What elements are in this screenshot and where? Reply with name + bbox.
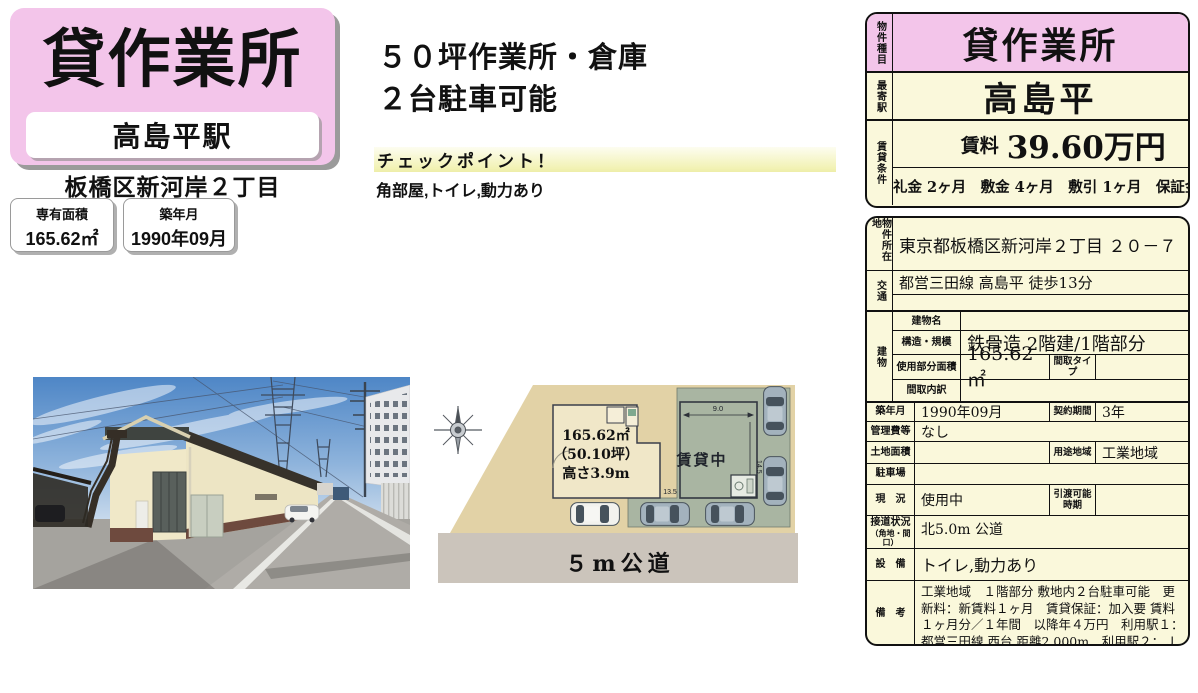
photo-parked-car <box>285 505 319 523</box>
row-management: 管理費等 なし <box>867 421 1188 441</box>
built-value: 1990年09月 <box>915 403 1049 421</box>
row-status: 現 況 使用中 引渡可能時期 <box>867 484 1188 515</box>
photo-apartment-building <box>366 385 410 489</box>
layout-detail-value <box>961 380 1188 401</box>
building-name-value <box>961 312 1188 330</box>
plan-tsubo: （50.10坪） <box>553 447 639 463</box>
row-built: 築年月 1990年09月 契約期間 3年 <box>867 401 1188 421</box>
summary-row-station: 最寄駅 高島平 <box>867 71 1188 119</box>
rent-label: 賃料 <box>961 131 999 158</box>
checkpoint-bar: チェックポイント！ <box>374 147 836 172</box>
listing-flyer: 貸作業所 高島平駅 板橋区新河岸２丁目 専有面積 165.62㎡ 築年月 199… <box>0 0 1198 693</box>
status-value: 使用中 <box>915 485 1049 515</box>
row-parking: 駐車場 <box>867 463 1188 484</box>
car-white <box>571 503 620 526</box>
summary-table: 物件種目 貸作業所 最寄駅 高島平 賃貸条件 賃料 39.60万円 礼金 2ヶ月… <box>865 12 1190 208</box>
address-short: 板橋区新河岸２丁目 <box>10 168 335 202</box>
access-empty <box>893 295 1188 310</box>
row-location: 物件所在地 東京都板橋区新河岸２丁目 ２０－７ <box>867 218 1188 270</box>
summary-row-property-type: 物件種目 貸作業所 <box>867 14 1188 71</box>
exterior-photo-scene <box>33 377 410 589</box>
road-contact-value: 北5.0m 公道 <box>915 516 1188 548</box>
row-used-area: 使用部分面積 165.62㎡ 間取タイプ <box>893 354 1188 379</box>
checkpoint-title: チェックポイント！ <box>377 147 557 172</box>
land-value <box>915 442 1049 463</box>
road: ５m公道 <box>438 533 798 583</box>
property-type-title: 貸作業所 <box>10 10 335 110</box>
headline-line2: ２台駐車可能 <box>378 76 558 118</box>
car-right-1 <box>764 387 787 436</box>
row-layout-detail: 間取内訳 <box>893 379 1188 401</box>
summary-property-type: 貸作業所 <box>893 14 1188 71</box>
row-equipment: 設 備 トイレ,動力あり <box>867 548 1188 580</box>
station-box: 高島平駅 <box>26 112 319 158</box>
dim-top: 9.0 <box>713 404 723 413</box>
station-name: 高島平駅 <box>112 115 232 155</box>
summary-station: 高島平 <box>893 73 1188 119</box>
row-land: 土地面積 用途地域 工業地域 <box>867 441 1188 463</box>
built-card-label: 築年月 <box>124 204 234 223</box>
car-bottom-1 <box>641 503 690 526</box>
station-label-cell: 最寄駅 <box>867 73 893 119</box>
property-type-label-cell: 物件種目 <box>867 14 893 71</box>
row-access: 交通 都営三田線 高島平 徒歩13分 <box>867 270 1188 310</box>
zoning-value: 工業地域 <box>1096 442 1188 463</box>
car-right-2 <box>764 457 787 506</box>
rent-value: 39.60万円 <box>1007 122 1166 167</box>
site-plan-drawing: ５m公道 賃貸中 9.0 14.5 13.5 <box>430 368 850 590</box>
location-value: 東京都板橋区新河岸２丁目 ２０－７ <box>893 218 1188 270</box>
management-value: なし <box>915 422 1188 441</box>
row-notes: 備 考 工業地域 １階部分 敷地内２台駐車可能 更新料：新賃料１ヶ月 賃貸保証：… <box>867 580 1188 646</box>
terms-line: 礼金 2ヶ月 敷金 4ヶ月 敷引 1ヶ月 保証金 なし <box>893 168 1190 205</box>
property-type-card: 貸作業所 高島平駅 <box>10 8 335 165</box>
road-label: ５m公道 <box>565 551 674 577</box>
detail-table: 物件所在地 東京都板橋区新河岸２丁目 ２０－７ 交通 都営三田線 高島平 徒歩1… <box>865 216 1190 646</box>
area-card-label: 専有面積 <box>11 204 113 223</box>
handover-value <box>1096 485 1188 515</box>
row-road-contact: 接道状況 （角地・間口） 北5.0m 公道 <box>867 515 1188 548</box>
car-bottom-2 <box>706 503 755 526</box>
rented-label: 賃貸中 <box>675 451 727 469</box>
exterior-photo <box>33 377 410 589</box>
row-building-name: 建物名 <box>893 312 1188 330</box>
parking-value <box>915 464 1188 484</box>
plan-area: 165.62㎡ <box>562 427 630 444</box>
row-building-group: 建物 建物名 構造・規模 鉄骨造 2階建/1階部分 使用部分面積 165.62㎡… <box>867 310 1188 401</box>
checkpoint-text: 角部屋,トイレ,動力あり <box>376 177 545 201</box>
terms-label-cell: 賃貸条件 <box>867 121 893 205</box>
area-card-value: 165.62㎡ <box>11 225 113 251</box>
site-plan: ５m公道 賃貸中 9.0 14.5 13.5 <box>430 368 850 590</box>
access-value: 都営三田線 高島平 徒歩13分 <box>893 271 1188 295</box>
used-area-value: 165.62㎡ <box>961 355 1049 379</box>
summary-row-terms: 賃貸条件 賃料 39.60万円 礼金 2ヶ月 敷金 4ヶ月 敷引 1ヶ月 保証金… <box>867 119 1188 205</box>
area-card: 専有面積 165.62㎡ <box>10 198 114 252</box>
photo-storage-cabinet <box>191 495 223 537</box>
built-card: 築年月 1990年09月 <box>123 198 235 252</box>
headline-line1: ５０坪作業所・倉庫 <box>378 34 648 76</box>
annex-room <box>607 407 624 423</box>
dim-right: 14.5 <box>755 460 762 474</box>
dim-bottom: 13.5 <box>663 489 677 496</box>
built-card-value: 1990年09月 <box>124 225 234 251</box>
compass-icon <box>434 406 482 454</box>
contract-term-value: 3年 <box>1096 403 1188 421</box>
plan-height: 高さ3.9m <box>562 465 629 482</box>
equipment-value: トイレ,動力あり <box>915 549 1188 580</box>
notes-value: 工業地域 １階部分 敷地内２台駐車可能 更新料：新賃料１ヶ月 賃貸保証：加入要 … <box>915 581 1188 646</box>
rent-line: 賃料 39.60万円 <box>893 121 1190 168</box>
layout-type-value <box>1096 355 1188 379</box>
